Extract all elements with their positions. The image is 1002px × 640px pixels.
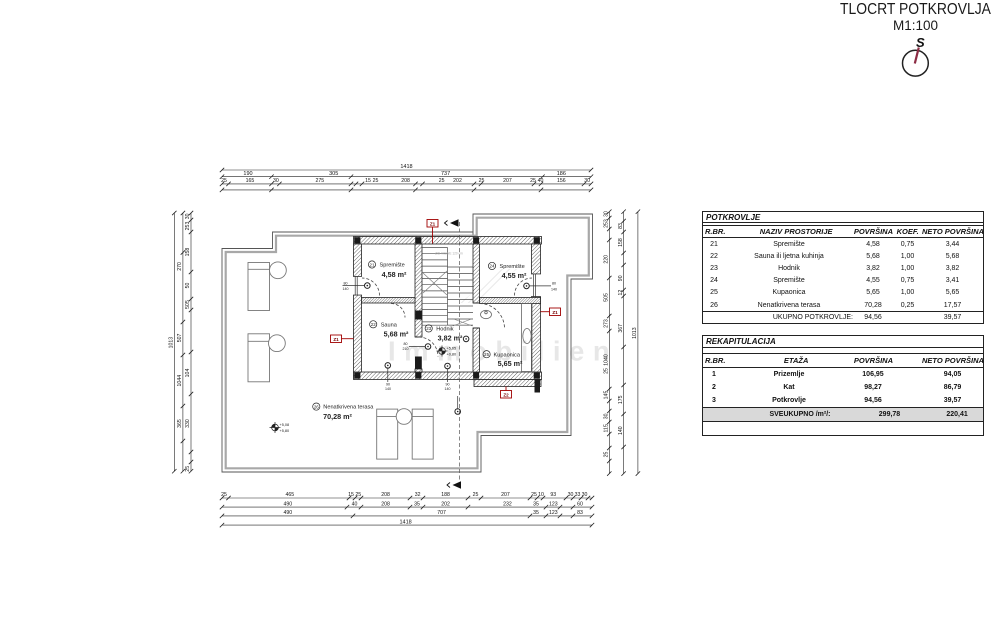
svg-text:175: 175	[618, 395, 624, 404]
svg-text:Hodnik: Hodnik	[436, 327, 454, 333]
svg-text:123: 123	[549, 510, 558, 516]
svg-text:90: 90	[618, 275, 624, 281]
svg-text:80: 80	[404, 342, 408, 346]
svg-text:186: 186	[557, 171, 566, 177]
svg-text:158: 158	[618, 238, 624, 247]
svg-text:25: 25	[473, 492, 479, 498]
svg-text:505: 505	[185, 300, 191, 309]
svg-text:15: 15	[348, 492, 354, 498]
svg-text:32: 32	[415, 492, 421, 498]
svg-text:140: 140	[385, 387, 391, 391]
svg-text:25: 25	[185, 466, 191, 472]
svg-text:33: 33	[575, 492, 581, 498]
svg-text:207: 207	[501, 492, 510, 498]
svg-text:275: 275	[315, 178, 324, 184]
svg-text:25: 25	[479, 178, 485, 184]
svg-text:220: 220	[604, 255, 610, 264]
svg-text:25: 25	[355, 492, 361, 498]
svg-text:104: 104	[185, 369, 191, 378]
svg-text:156: 156	[557, 178, 566, 184]
svg-text:140: 140	[445, 387, 451, 391]
svg-text:25: 25	[604, 452, 610, 458]
svg-text:1418: 1418	[399, 519, 411, 525]
svg-text:505: 505	[604, 293, 610, 302]
svg-text:60: 60	[577, 502, 583, 508]
svg-text:140: 140	[551, 287, 557, 291]
svg-text:+0,80: +0,80	[447, 353, 457, 357]
svg-text:25: 25	[221, 178, 227, 184]
svg-text:30: 30	[604, 211, 610, 217]
svg-text:25: 25	[439, 178, 445, 184]
svg-text:Z1: Z1	[430, 221, 436, 226]
svg-text:210: 210	[403, 347, 409, 351]
svg-text:5,65 m²: 5,65 m²	[498, 359, 523, 368]
svg-text:208: 208	[401, 178, 410, 184]
svg-text:115: 115	[604, 424, 610, 432]
svg-text:707: 707	[437, 510, 446, 516]
svg-text:330: 330	[185, 419, 191, 428]
svg-text:4,55 m²: 4,55 m²	[502, 271, 527, 280]
svg-text:490: 490	[283, 510, 292, 516]
svg-text:207: 207	[503, 178, 512, 184]
svg-text:140: 140	[618, 426, 624, 435]
svg-text:90: 90	[386, 383, 390, 387]
svg-text:123: 123	[549, 502, 558, 508]
svg-text:22: 22	[371, 322, 376, 327]
svg-text:+5,65: +5,65	[447, 347, 457, 351]
svg-text:365: 365	[177, 419, 183, 428]
svg-text:90: 90	[446, 383, 450, 387]
svg-text:Nenatkrivena terasa: Nenatkrivena terasa	[323, 405, 374, 411]
svg-text:25: 25	[221, 492, 227, 498]
svg-text:3,82 m²: 3,82 m²	[438, 334, 463, 343]
svg-text:40: 40	[352, 502, 358, 508]
svg-text:80: 80	[344, 281, 348, 285]
svg-text:80: 80	[552, 282, 556, 286]
svg-text:Z2: Z2	[503, 392, 509, 397]
svg-text:367: 367	[618, 324, 624, 333]
svg-text:145: 145	[604, 391, 610, 400]
svg-text:202: 202	[453, 178, 462, 184]
svg-text:S: S	[916, 35, 925, 50]
svg-text:30: 30	[584, 178, 590, 184]
svg-text:190: 190	[243, 171, 252, 177]
svg-text:10: 10	[538, 492, 544, 498]
svg-text:232: 232	[503, 502, 512, 508]
svg-text:30: 30	[185, 213, 191, 219]
svg-text:1418: 1418	[400, 164, 412, 170]
svg-text:+5,80: +5,80	[280, 429, 290, 433]
svg-text:4,58 m²: 4,58 m²	[382, 270, 407, 279]
svg-text:83: 83	[618, 223, 624, 229]
svg-text:208: 208	[381, 492, 390, 498]
svg-text:Spremište: Spremište	[380, 263, 405, 269]
svg-text:Z1: Z1	[552, 310, 558, 315]
svg-text:Z1: Z1	[333, 337, 339, 342]
svg-text:ZID VISINE 120 cm: ZID VISINE 120 cm	[435, 252, 463, 256]
svg-text:1013: 1013	[169, 337, 175, 349]
svg-text:208: 208	[381, 502, 390, 508]
svg-text:188: 188	[441, 492, 450, 498]
svg-text:35: 35	[533, 502, 539, 508]
svg-text:465: 465	[285, 492, 294, 498]
svg-text:93: 93	[550, 492, 556, 498]
svg-text:25: 25	[531, 492, 537, 498]
svg-text:25: 25	[484, 352, 489, 357]
svg-text:50: 50	[185, 283, 191, 289]
svg-text:26: 26	[314, 404, 319, 409]
svg-text:40: 40	[538, 178, 544, 184]
svg-text:24: 24	[490, 264, 495, 269]
svg-text:21: 21	[370, 262, 375, 267]
svg-text:23: 23	[426, 326, 431, 331]
svg-text:305: 305	[329, 171, 338, 177]
svg-text:490: 490	[283, 502, 292, 508]
svg-text:202: 202	[441, 502, 450, 508]
svg-text:158: 158	[185, 248, 191, 257]
svg-text:507: 507	[177, 333, 183, 342]
svg-text:Spremište: Spremište	[500, 264, 525, 270]
svg-text:5,68 m²: 5,68 m²	[384, 330, 409, 339]
svg-text:253: 253	[185, 222, 191, 231]
svg-text:12: 12	[618, 290, 624, 296]
svg-text:83: 83	[577, 510, 583, 516]
svg-text:140: 140	[343, 287, 349, 291]
svg-text:273: 273	[604, 319, 610, 328]
svg-text:30: 30	[604, 413, 610, 419]
svg-text:25: 25	[604, 368, 610, 374]
svg-text:15: 15	[365, 178, 371, 184]
svg-text:30: 30	[568, 492, 574, 498]
svg-text:Kupaonica: Kupaonica	[494, 352, 521, 358]
svg-text:Sauna: Sauna	[381, 322, 398, 328]
svg-text:35: 35	[414, 502, 420, 508]
svg-text:+5,08: +5,08	[280, 423, 290, 427]
svg-text:270: 270	[177, 262, 183, 271]
svg-text:70,28 m²: 70,28 m²	[323, 412, 352, 421]
svg-text:1040: 1040	[604, 354, 610, 366]
svg-text:25: 25	[373, 178, 379, 184]
svg-text:1013: 1013	[632, 327, 638, 339]
svg-text:30: 30	[273, 178, 279, 184]
svg-text:1044: 1044	[177, 375, 183, 387]
svg-text:25: 25	[530, 178, 536, 184]
svg-text:737: 737	[441, 171, 450, 177]
svg-text:165: 165	[246, 178, 255, 184]
svg-text:30: 30	[582, 492, 588, 498]
svg-text:253: 253	[604, 219, 610, 228]
svg-text:35: 35	[533, 510, 539, 516]
